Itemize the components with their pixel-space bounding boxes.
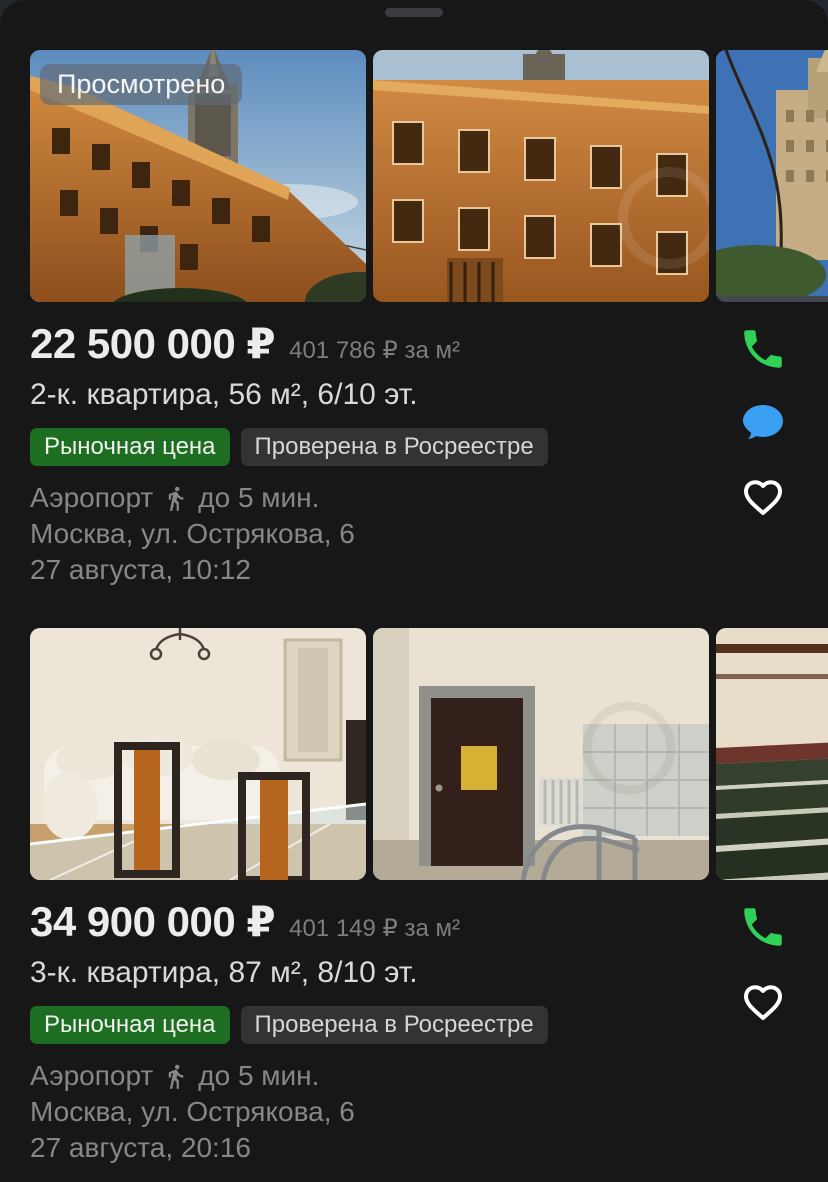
staircase-image: [716, 628, 828, 880]
walk-icon: [162, 485, 189, 512]
chat-button[interactable]: [739, 399, 787, 447]
phone-icon: [738, 324, 788, 374]
listing-title: 2-к. квартира, 56 м², 6/10 эт.: [30, 376, 732, 414]
viewed-badge: Просмотрено: [40, 64, 242, 105]
price-per-sqm: 401 149 ₽ за м²: [289, 914, 460, 943]
price-row: 34 900 000 ₽ 401 149 ₽ за м²: [30, 898, 732, 946]
sheet-drag-handle[interactable]: [385, 8, 443, 17]
address: Москва, ул. Острякова, 6: [30, 1094, 732, 1130]
listing-photo-living-room[interactable]: [30, 628, 366, 880]
photo-gallery[interactable]: Просмотрено: [30, 50, 828, 302]
heart-icon: [739, 977, 787, 1025]
walk-icon: [162, 1063, 189, 1090]
badges-row: Рыночная цена Проверена в Росреестре: [30, 1006, 732, 1044]
badge-rosreestr-verified: Проверена в Росреестре: [241, 428, 548, 466]
walk-time: до 5 мин.: [198, 1058, 319, 1094]
listing-card[interactable]: Просмотрено: [0, 50, 828, 588]
listing-photo-hallway[interactable]: [373, 628, 709, 880]
action-buttons: [732, 898, 828, 1166]
posted-date: 27 августа, 20:16: [30, 1130, 732, 1166]
metro-station: Аэропорт: [30, 1058, 153, 1094]
listing-title: 3-к. квартира, 87 м², 8/10 эт.: [30, 954, 732, 992]
phone-icon: [738, 902, 788, 952]
listing-photo-exterior[interactable]: Просмотрено: [30, 50, 366, 302]
action-buttons: [732, 320, 828, 588]
favorite-button[interactable]: [739, 472, 787, 520]
living-room-image: [30, 628, 366, 880]
listings-bottom-sheet: Просмотрено: [0, 0, 828, 1182]
entrance-hall-image: [373, 628, 709, 880]
metro-line: Аэропорт до 5 мин.: [30, 1058, 732, 1094]
badge-market-price: Рыночная цена: [30, 1006, 230, 1044]
price-row: 22 500 000 ₽ 401 786 ₽ за м²: [30, 320, 732, 368]
metro-station: Аэропорт: [30, 480, 153, 516]
price: 22 500 000 ₽: [30, 320, 275, 368]
listing-photo-street[interactable]: P: [716, 50, 828, 302]
price: 34 900 000 ₽: [30, 898, 275, 946]
price-per-sqm: 401 786 ₽ за м²: [289, 336, 460, 365]
chat-icon: [739, 399, 787, 447]
favorite-button[interactable]: [739, 977, 787, 1025]
listing-card[interactable]: 34 900 000 ₽ 401 149 ₽ за м² 3-к. кварти…: [0, 628, 828, 1166]
street-view-image: P: [716, 50, 828, 302]
walk-time: до 5 мин.: [198, 480, 319, 516]
building-facade-image: [373, 50, 709, 302]
app-viewport: Просмотрено: [0, 0, 828, 1182]
metro-line: Аэропорт до 5 мин.: [30, 480, 732, 516]
badge-market-price: Рыночная цена: [30, 428, 230, 466]
call-button[interactable]: [738, 902, 788, 952]
call-button[interactable]: [738, 324, 788, 374]
heart-icon: [739, 472, 787, 520]
posted-date: 27 августа, 10:12: [30, 552, 732, 588]
badge-rosreestr-verified: Проверена в Росреестре: [241, 1006, 548, 1044]
address: Москва, ул. Острякова, 6: [30, 516, 732, 552]
badges-row: Рыночная цена Проверена в Росреестре: [30, 428, 732, 466]
listing-photo-facade[interactable]: [373, 50, 709, 302]
listing-photo-staircase[interactable]: [716, 628, 828, 880]
photo-gallery[interactable]: [30, 628, 828, 880]
